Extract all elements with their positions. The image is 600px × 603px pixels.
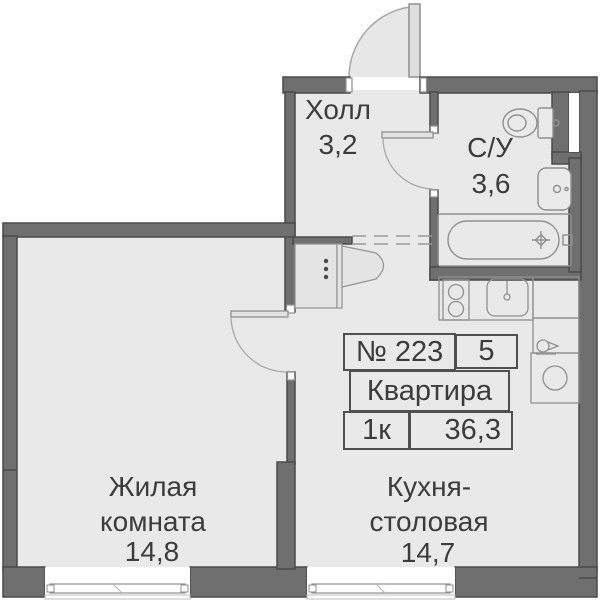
wall-left-outer <box>3 236 17 570</box>
wall-living-top <box>3 223 295 237</box>
wall-partition-wide <box>277 462 295 569</box>
wall-bottom-2 <box>190 567 307 597</box>
room-label-kitchen-line1: Кухня- <box>370 469 489 504</box>
entrance-door <box>349 4 420 77</box>
room-area-living: 14,8 <box>125 534 180 569</box>
vent-shaft <box>569 93 579 152</box>
plate-type: Квартира <box>349 370 510 412</box>
room-label-kitchen-line2: столовая <box>370 504 489 539</box>
room-label-living-line1: Жилая <box>100 469 206 504</box>
room-label-living: Жилая комната <box>100 469 206 539</box>
room-label-hall: Холл <box>305 92 371 127</box>
room-label-kitchen: Кухня- столовая <box>370 469 489 539</box>
wall-bottom-1 <box>3 567 45 597</box>
room-area-bathroom: 3,6 <box>472 166 511 201</box>
floor-plan-drawing <box>0 0 600 603</box>
room-area-kitchen: 14,7 <box>401 535 456 570</box>
entrance-door-leaf <box>409 4 420 77</box>
washbasin-icon <box>538 168 571 210</box>
plate-floor: 5 <box>455 334 518 369</box>
wall-bottom-3 <box>455 567 597 597</box>
bathroom-door-leaf <box>382 132 433 138</box>
wall-top-right-of-door <box>420 77 597 93</box>
wall-partition-thin <box>287 372 295 464</box>
plate-total-area: 36,3 <box>409 411 513 450</box>
window-kitchen <box>307 567 455 599</box>
floor-plan: Холл 3,2 С/У 3,6 Жилая комната 14,8 Кухн… <box>0 0 600 603</box>
plate-apartment-number: № 223 <box>343 333 456 371</box>
room-label-bathroom: С/У <box>467 130 513 165</box>
plate-room-count: 1к <box>343 411 410 450</box>
living-room-door-leaf <box>231 311 288 317</box>
wall-hall-left <box>285 92 295 312</box>
room-area-hall: 3,2 <box>319 127 358 162</box>
window-living-room <box>45 567 190 599</box>
wall-closet-stub <box>293 237 352 244</box>
wall-bath-bottom <box>430 267 581 280</box>
wall-top-left-of-door <box>283 77 350 93</box>
